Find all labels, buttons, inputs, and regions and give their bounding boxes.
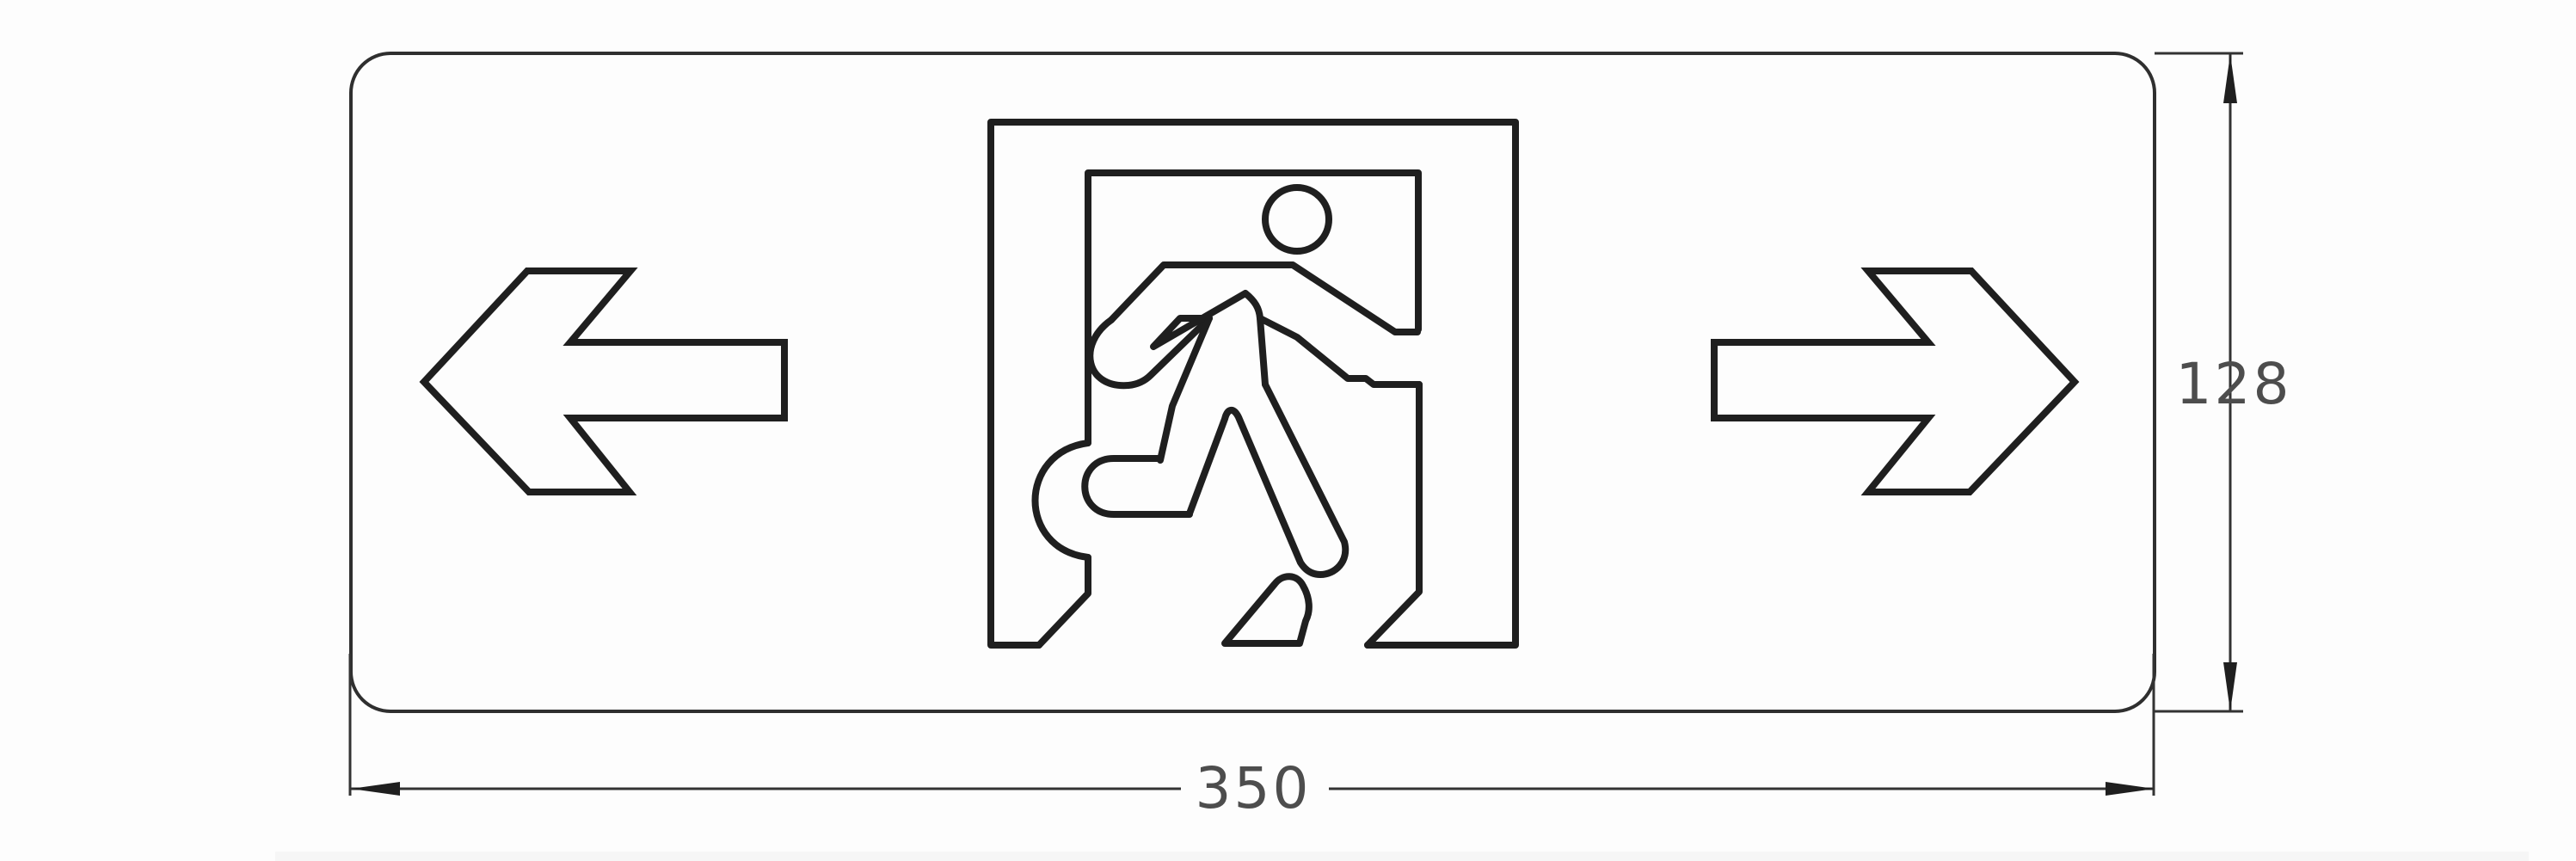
drawing-canvas: 128 350 [0,0,2576,861]
bottom-shadow-strip [275,852,2529,861]
height-dimension-label: 128 [2176,351,2292,417]
width-dimension-label: 350 [1196,755,1312,821]
exit-sign-dimension-drawing: 128 350 [0,0,2576,861]
